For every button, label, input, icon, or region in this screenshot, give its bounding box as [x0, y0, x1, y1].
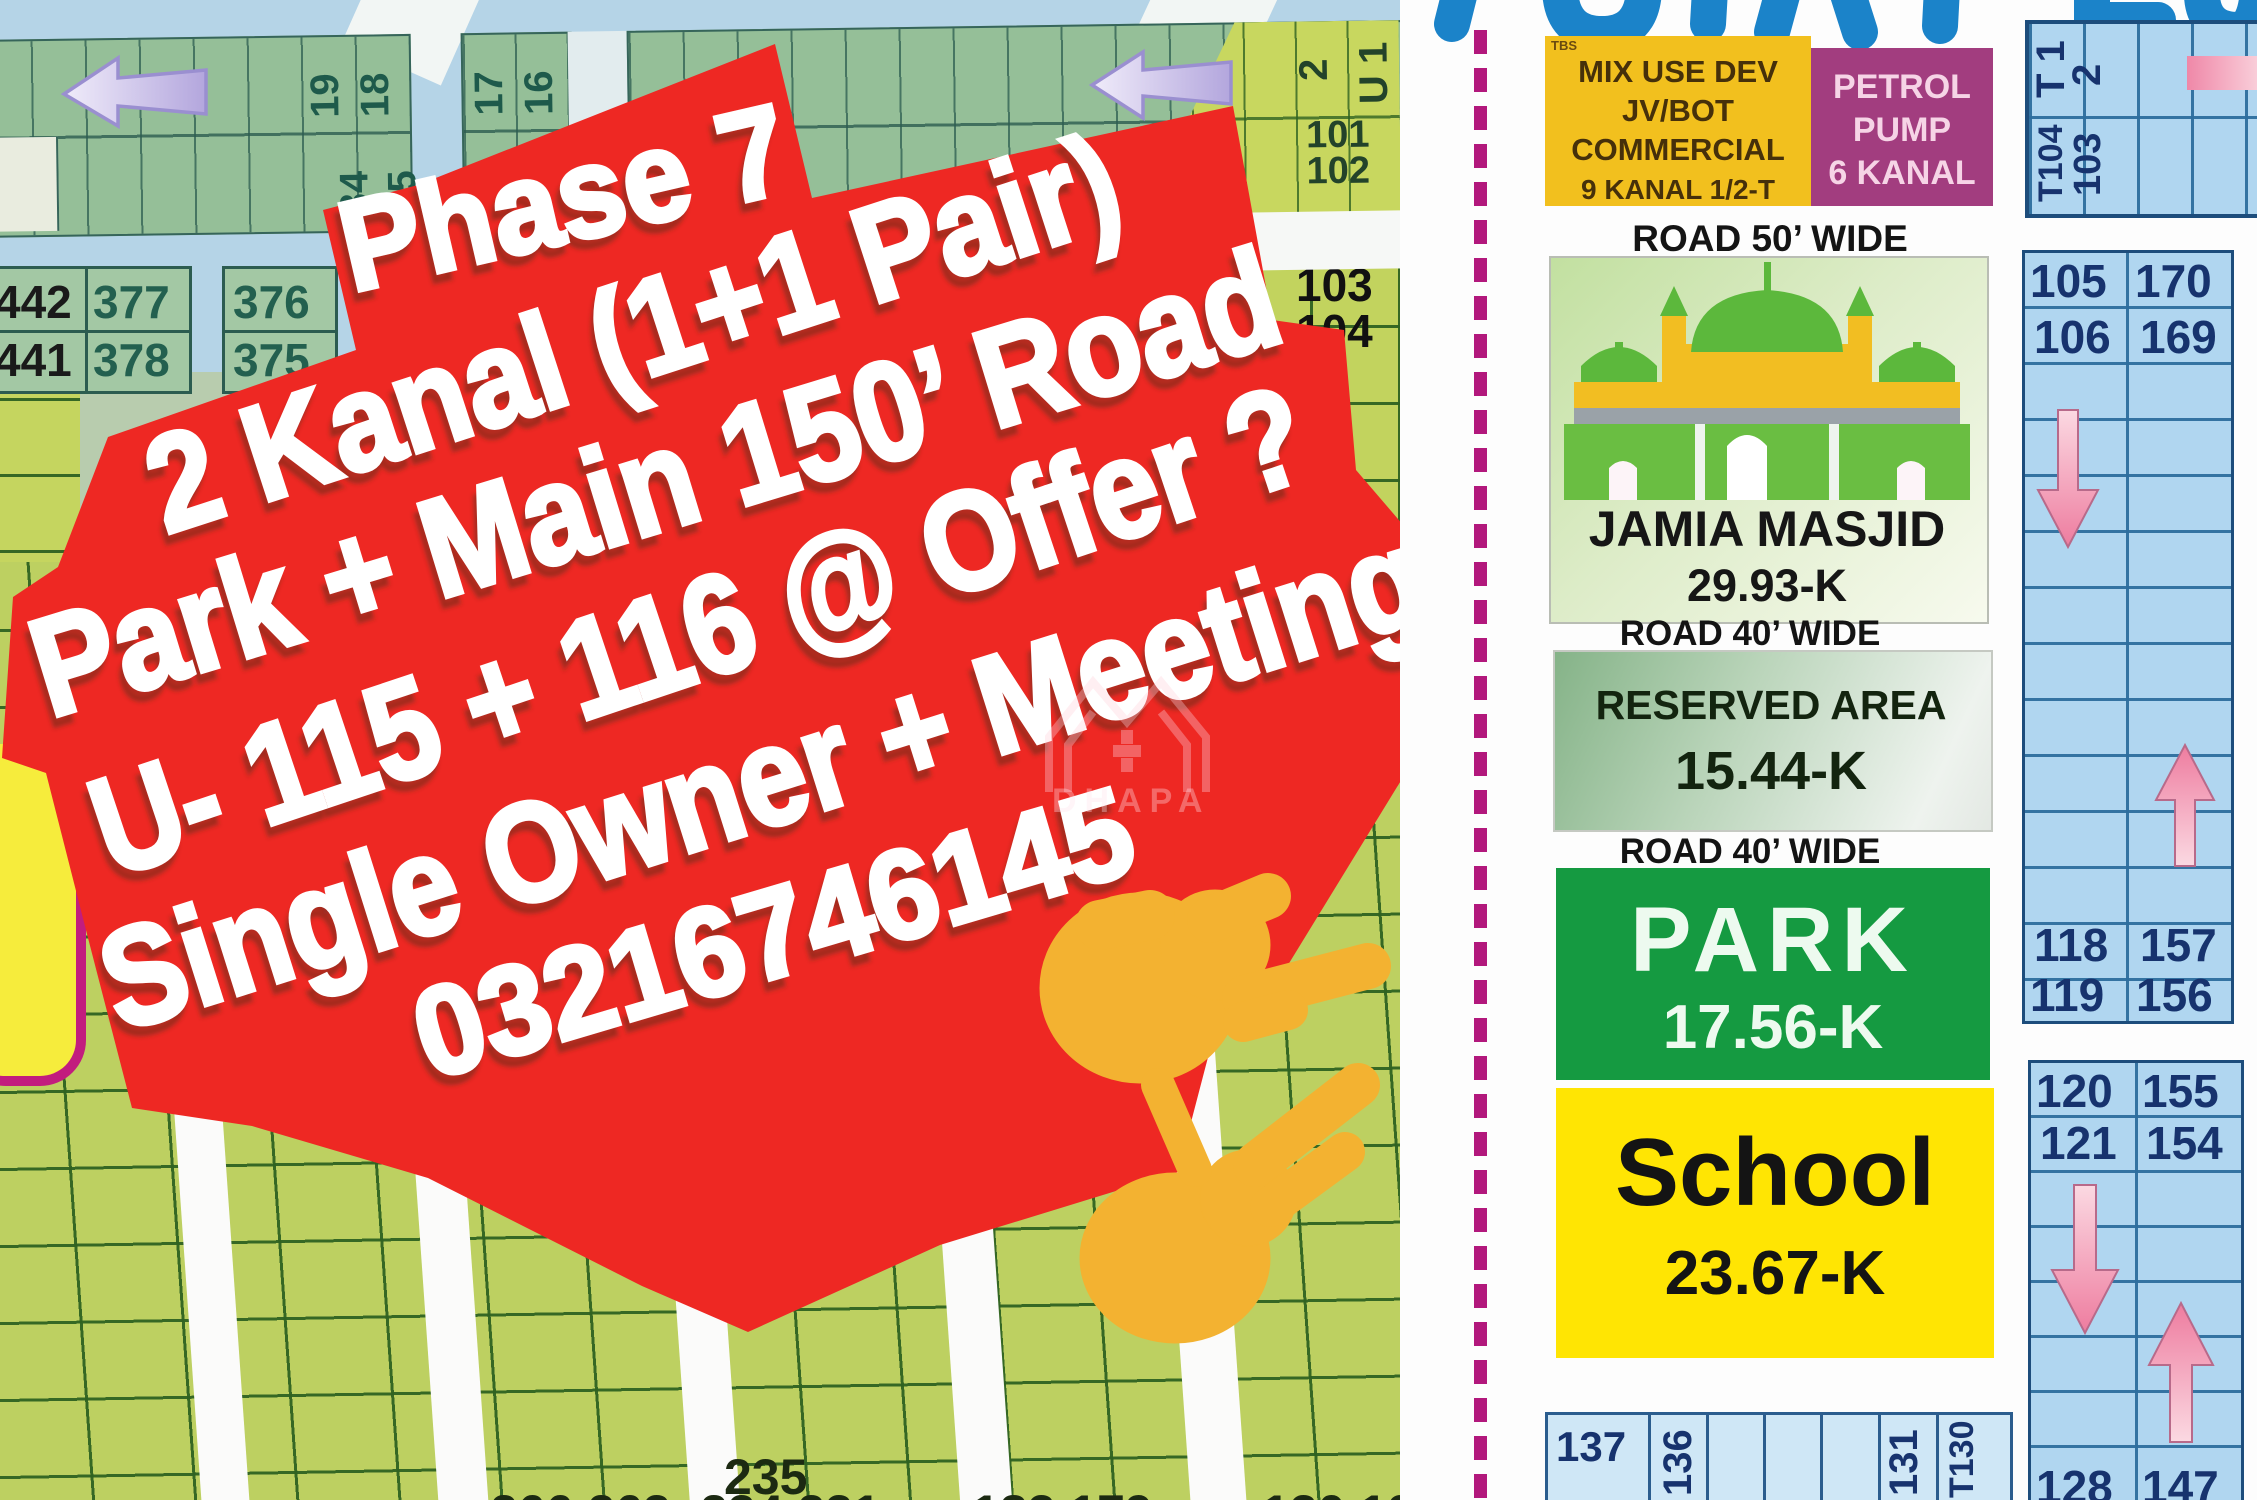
svg-text:136: 136	[1656, 1429, 1700, 1496]
svg-text:131: 131	[1882, 1429, 1926, 1496]
svg-text:JAMIA MASJID: JAMIA MASJID	[1589, 501, 1946, 557]
svg-text:29.93-K: 29.93-K	[1687, 560, 1848, 611]
svg-text:DHAPA: DHAPA	[1052, 782, 1210, 820]
svg-text:T130: T130	[1943, 1421, 1981, 1499]
